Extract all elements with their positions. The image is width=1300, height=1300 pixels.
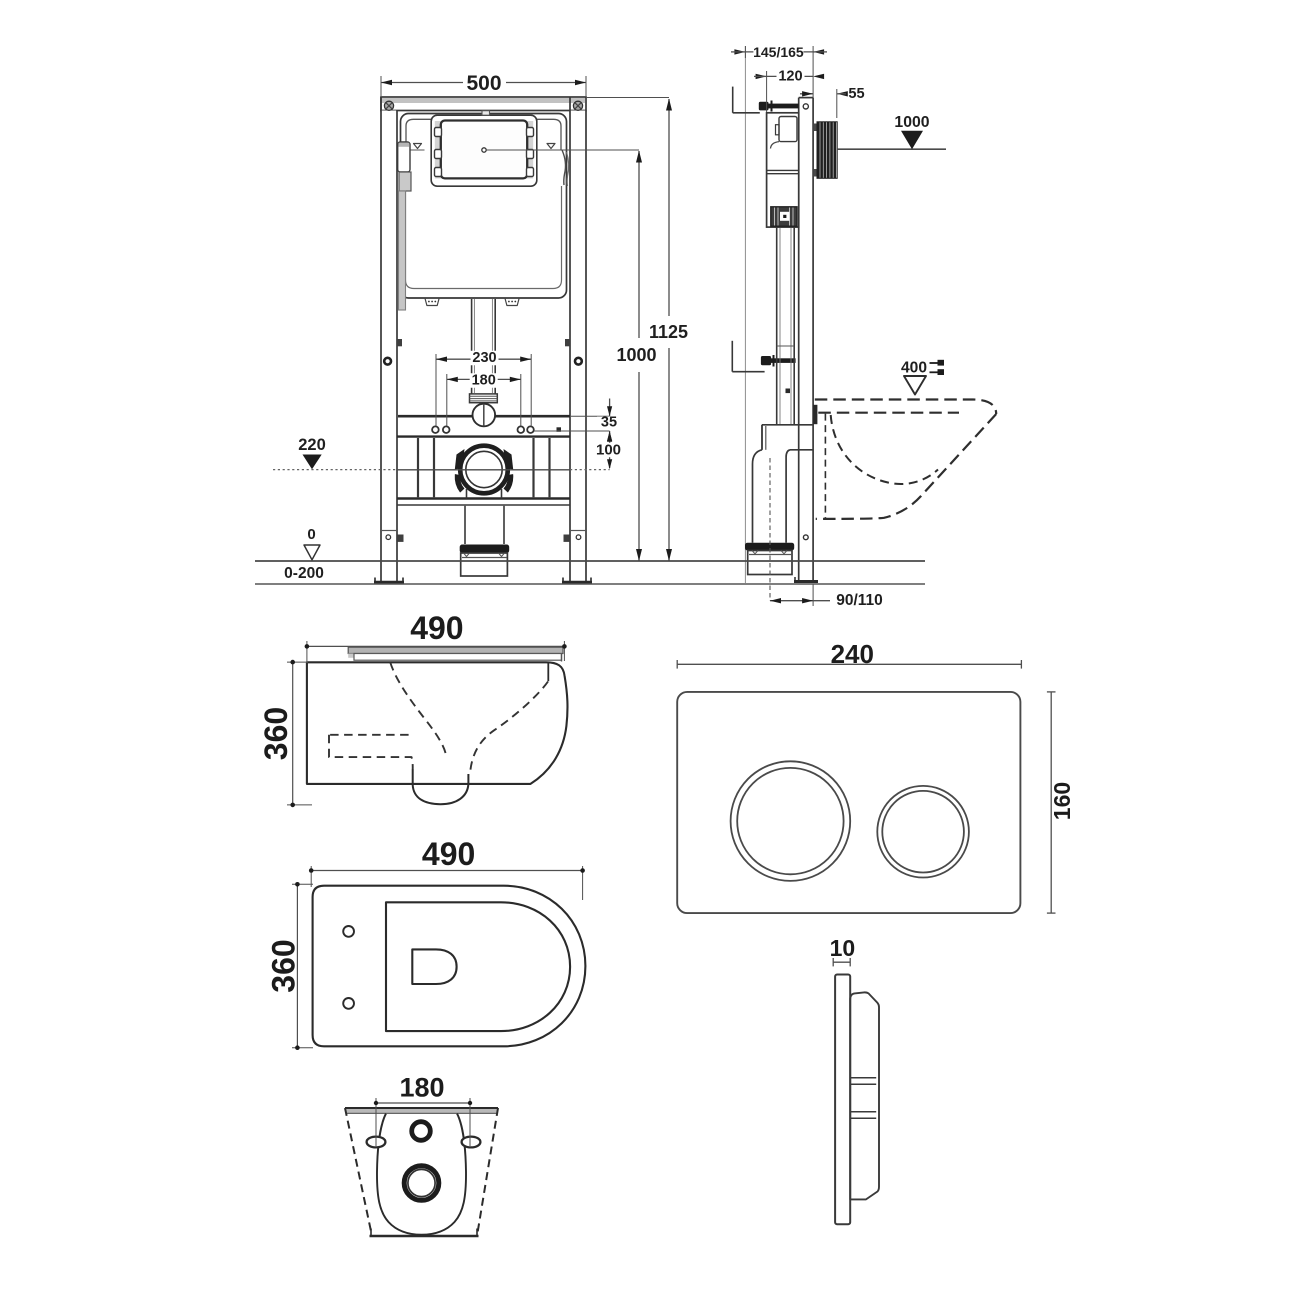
svg-text:240: 240 (831, 639, 874, 669)
svg-text:490: 490 (422, 836, 475, 872)
svg-text:180: 180 (399, 1073, 444, 1103)
svg-text:55: 55 (848, 86, 864, 102)
svg-text:120: 120 (778, 69, 802, 85)
svg-text:180: 180 (472, 373, 496, 389)
svg-text:400: 400 (901, 360, 927, 377)
svg-text:10: 10 (830, 935, 856, 961)
svg-text:145/165: 145/165 (753, 44, 804, 60)
svg-text:0-200: 0-200 (284, 565, 324, 582)
svg-text:230: 230 (472, 350, 496, 366)
svg-text:360: 360 (266, 939, 302, 992)
svg-text:500: 500 (466, 72, 501, 95)
svg-text:1125: 1125 (649, 322, 688, 342)
svg-text:490: 490 (410, 610, 463, 646)
svg-text:160: 160 (1049, 782, 1075, 820)
svg-text:35: 35 (601, 415, 617, 431)
svg-text:1000: 1000 (616, 345, 656, 365)
svg-text:0: 0 (307, 526, 315, 543)
svg-text:90/110: 90/110 (836, 592, 883, 609)
svg-text:220: 220 (298, 436, 326, 454)
svg-text:100: 100 (596, 442, 621, 459)
svg-text:1000: 1000 (894, 114, 929, 131)
svg-text:360: 360 (258, 707, 294, 760)
